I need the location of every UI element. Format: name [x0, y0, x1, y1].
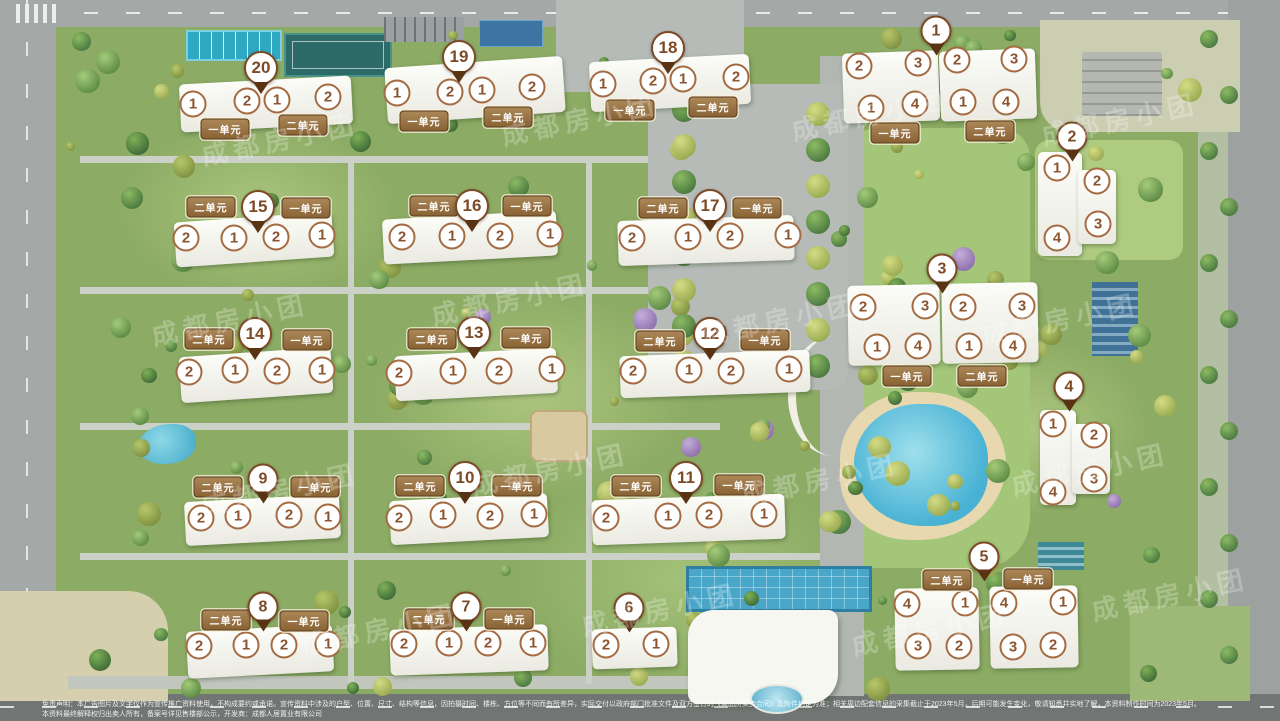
unit-number-badge: 2	[264, 358, 291, 385]
building-pin-number: 15	[241, 190, 275, 224]
pin-pointer	[458, 620, 474, 632]
tree-icon	[947, 474, 963, 490]
unit-number-badge: 1	[858, 95, 885, 122]
unit-entrance-label[interactable]: 一单元	[871, 123, 920, 144]
tree-icon	[806, 102, 830, 126]
disclaimer-line-2: 本资料最终解释权归出卖人所有，备案号详见售楼部公示，开发商：成都人居置业有限公司	[42, 710, 1280, 720]
unit-number-badge: 1	[643, 631, 670, 658]
unit-number-badge: 3	[912, 293, 939, 320]
tree-icon	[986, 459, 1010, 483]
building-pin-17[interactable]: 17	[693, 189, 727, 223]
gazebo	[530, 410, 588, 462]
building-pin-19[interactable]: 19	[442, 40, 476, 74]
unit-entrance-label[interactable]: 二单元	[966, 121, 1015, 142]
unit-number-badge: 2	[477, 503, 504, 530]
tree-icon	[514, 669, 532, 687]
unit-number-badge: 1	[222, 357, 249, 384]
unit-number-badge: 2	[696, 502, 723, 529]
building-pin-7[interactable]: 7	[451, 592, 482, 623]
unit-entrance-label[interactable]: 二单元	[405, 609, 454, 630]
unit-entrance-label[interactable]: 一单元	[502, 328, 551, 349]
unit-number-badge: 1	[315, 504, 342, 531]
tree-icon	[154, 628, 167, 641]
site-plan: 1212一单元二单元201212一单元二单元191212一单元二单元182323…	[0, 0, 1280, 721]
tree-icon	[1220, 422, 1238, 440]
building-pin-number: 11	[669, 461, 703, 495]
unit-number-badge: 3	[1081, 466, 1108, 493]
unit-number-badge: 2	[519, 74, 546, 101]
unit-entrance-label[interactable]: 二单元	[187, 197, 236, 218]
tree-icon	[1220, 86, 1238, 104]
unit-number-badge: 2	[846, 53, 873, 80]
tree-icon	[882, 255, 903, 276]
unit-number-badge: 4	[1000, 333, 1027, 360]
building-pin-number: 13	[457, 316, 491, 350]
unit-number-badge: 2	[188, 505, 215, 532]
building-pin-18[interactable]: 18	[651, 31, 685, 65]
unit-number-badge: 4	[993, 89, 1020, 116]
pin-pointer	[250, 221, 266, 233]
unit-number-badge: 3	[905, 633, 932, 660]
sports-court	[284, 33, 392, 77]
unit-entrance-label[interactable]: 一单元	[741, 330, 790, 351]
building-pin-8[interactable]: 8	[248, 592, 279, 623]
unit-number-badge: 1	[676, 357, 703, 384]
tree-icon	[1200, 366, 1218, 384]
tree-icon	[1200, 478, 1218, 496]
tree-icon	[1220, 198, 1238, 216]
tree-icon	[1200, 590, 1218, 608]
unit-number-badge: 1	[315, 631, 342, 658]
tree-icon	[848, 481, 862, 495]
unit-number-badge: 1	[309, 222, 336, 249]
basketball-court	[479, 20, 543, 47]
unit-number-badge: 1	[180, 91, 207, 118]
unit-number-badge: 1	[1050, 589, 1077, 616]
unit-number-badge: 1	[864, 334, 891, 361]
unit-number-badge: 2	[487, 223, 514, 250]
unit-entrance-label[interactable]: 二单元	[185, 329, 234, 350]
unit-number-badge: 1	[436, 630, 463, 657]
building-pin-number: 20	[244, 51, 278, 85]
tree-icon	[126, 132, 148, 154]
unit-number-badge: 2	[486, 358, 513, 385]
unit-number-badge: 2	[718, 358, 745, 385]
unit-number-badge: 4	[1040, 479, 1067, 506]
unit-entrance-label[interactable]: 一单元	[606, 100, 655, 121]
tree-icon	[1178, 78, 1202, 102]
unit-number-badge: 4	[894, 591, 921, 618]
building-pin-number: 9	[248, 464, 279, 495]
building-pin-10[interactable]: 10	[448, 461, 482, 495]
unit-number-badge: 2	[315, 84, 342, 111]
tree-icon	[1220, 534, 1238, 552]
tree-icon	[842, 465, 856, 479]
building-pin-number: 10	[448, 461, 482, 495]
unit-entrance-label[interactable]: 二单元	[689, 97, 738, 118]
tree-icon	[1143, 547, 1159, 563]
unit-number-badge: 1	[309, 357, 336, 384]
tree-icon	[806, 246, 830, 270]
unit-number-badge: 2	[950, 294, 977, 321]
unit-number-badge: 1	[221, 225, 248, 252]
tree-icon	[1200, 254, 1218, 272]
unit-entrance-label[interactable]: 一单元	[291, 477, 340, 498]
unit-number-badge: 1	[384, 80, 411, 107]
unit-number-badge: 1	[469, 77, 496, 104]
unit-number-badge: 1	[539, 356, 566, 383]
tree-icon	[881, 28, 901, 48]
unit-number-badge: 2	[271, 632, 298, 659]
unit-number-badge: 3	[1009, 293, 1036, 320]
unit-entrance-label[interactable]: 一单元	[715, 475, 764, 496]
building-pin-13[interactable]: 13	[457, 316, 491, 350]
tree-icon	[1220, 310, 1238, 328]
tree-icon	[1220, 646, 1238, 664]
unit-number-badge: 1	[430, 502, 457, 529]
building-pin-number: 6	[614, 593, 645, 624]
tree-icon	[75, 69, 100, 94]
pin-pointer	[255, 492, 271, 504]
unit-number-badge: 4	[902, 91, 929, 118]
tree-icon	[819, 511, 841, 533]
neighboring-building	[1082, 52, 1162, 116]
unit-number-badge: 2	[946, 633, 973, 660]
tree-icon	[868, 436, 890, 458]
pin-pointer	[928, 44, 944, 56]
unit-number-badge: 2	[717, 223, 744, 250]
unit-number-badge: 2	[386, 360, 413, 387]
tree-icon	[132, 530, 148, 546]
tree-icon	[500, 565, 511, 576]
unit-entrance-label[interactable]: 二单元	[923, 570, 972, 591]
unit-number-badge: 1	[950, 89, 977, 116]
pin-pointer	[1064, 150, 1080, 162]
unit-number-badge: 1	[520, 630, 547, 657]
tree-icon	[806, 210, 830, 234]
unit-number-badge: 2	[1081, 422, 1108, 449]
unit-entrance-label[interactable]: 一单元	[201, 119, 250, 140]
tree-icon	[587, 260, 597, 270]
unit-number-badge: 3	[1001, 46, 1028, 73]
building-pin-number: 18	[651, 31, 685, 65]
unit-number-badge: 1	[233, 632, 260, 659]
pin-pointer	[457, 492, 473, 504]
pin-pointer	[247, 348, 263, 360]
unit-number-badge: 2	[176, 359, 203, 386]
unit-entrance-label[interactable]: 二单元	[639, 198, 688, 219]
unit-number-badge: 3	[1085, 211, 1112, 238]
tree-icon	[806, 138, 830, 162]
unit-number-badge: 4	[1044, 225, 1071, 252]
tree-icon	[672, 134, 696, 158]
building-pin-number: 5	[969, 542, 1000, 573]
pin-pointer	[621, 621, 637, 633]
unit-number-badge: 1	[440, 358, 467, 385]
unit-number-badge: 2	[173, 225, 200, 252]
unit-entrance-label[interactable]: 一单元	[400, 111, 449, 132]
building-pin-11[interactable]: 11	[669, 461, 703, 495]
building-pin-number: 4	[1054, 372, 1085, 403]
tree-icon	[927, 494, 950, 517]
unit-number-badge: 1	[225, 503, 252, 530]
unit-number-badge: 1	[775, 222, 802, 249]
building-pin-6[interactable]: 6	[614, 593, 645, 624]
tree-icon	[171, 64, 184, 77]
unit-number-badge: 1	[537, 221, 564, 248]
unit-number-badge: 1	[776, 356, 803, 383]
unit-entrance-label[interactable]: 二单元	[202, 610, 251, 631]
pin-pointer	[1061, 400, 1077, 412]
tree-icon	[1095, 251, 1119, 275]
tree-icon	[888, 391, 902, 405]
unit-entrance-label[interactable]: 二单元	[636, 331, 685, 352]
unit-number-badge: 2	[389, 224, 416, 251]
unit-number-badge: 2	[1084, 168, 1111, 195]
building-pin-1[interactable]: 1	[921, 16, 952, 47]
tree-icon	[1088, 146, 1103, 161]
unit-number-badge: 4	[905, 333, 932, 360]
tree-icon	[1200, 142, 1218, 160]
tree-icon	[648, 286, 672, 310]
tree-icon	[914, 170, 923, 179]
building-pin-14[interactable]: 14	[238, 317, 272, 351]
tree-icon	[369, 270, 389, 290]
crosswalk	[16, 4, 56, 23]
building-pin-number: 12	[693, 317, 727, 351]
unit-number-badge: 2	[263, 224, 290, 251]
pin-pointer	[934, 282, 950, 294]
solar-panel-array	[1038, 542, 1084, 570]
tree-icon	[417, 450, 432, 465]
unit-entrance-label[interactable]: 二单元	[410, 196, 459, 217]
unit-number-badge: 1	[952, 590, 979, 617]
unit-number-badge: 2	[186, 633, 213, 660]
unit-number-badge: 2	[620, 358, 647, 385]
building-pin-2[interactable]: 2	[1057, 122, 1088, 153]
clubhouse-water-feature	[686, 566, 872, 612]
unit-entrance-label[interactable]: 一单元	[283, 330, 332, 351]
tree-icon	[1200, 30, 1218, 48]
building-pin-12[interactable]: 12	[693, 317, 727, 351]
tree-icon	[230, 461, 243, 474]
swimming-pool	[854, 404, 988, 526]
tree-icon	[866, 677, 890, 701]
tree-icon	[339, 606, 351, 618]
pin-pointer	[976, 570, 992, 582]
unit-entrance-label[interactable]: 一单元	[733, 198, 782, 219]
unit-number-badge: 1	[1040, 411, 1067, 438]
pin-pointer	[702, 348, 718, 360]
tree-icon	[950, 501, 960, 511]
unit-entrance-label[interactable]: 二单元	[408, 329, 457, 350]
unit-number-badge: 2	[723, 64, 750, 91]
tree-icon	[806, 282, 830, 306]
unit-entrance-label[interactable]: 二单元	[194, 477, 243, 498]
unit-entrance-label[interactable]: 一单元	[280, 611, 329, 632]
unit-number-badge: 2	[850, 294, 877, 321]
unit-number-badge: 2	[944, 47, 971, 74]
tree-icon	[173, 155, 196, 178]
unit-entrance-label[interactable]: 二单元	[396, 476, 445, 497]
unit-number-badge: 2	[391, 631, 418, 658]
unit-number-badge: 4	[991, 590, 1018, 617]
building-pin-16[interactable]: 16	[455, 189, 489, 223]
building-pin-4[interactable]: 4	[1054, 372, 1085, 403]
building-pin-number: 19	[442, 40, 476, 74]
building-pin-number: 8	[248, 592, 279, 623]
unit-number-badge: 1	[521, 501, 548, 528]
unit-entrance-label[interactable]: 一单元	[485, 609, 534, 630]
building-pin-15[interactable]: 15	[241, 190, 275, 224]
pin-pointer	[464, 220, 480, 232]
unit-number-badge: 2	[619, 225, 646, 252]
unit-entrance-label[interactable]: 二单元	[279, 115, 328, 136]
tree-icon	[1130, 350, 1143, 363]
unit-entrance-label[interactable]: 一单元	[1004, 569, 1053, 590]
walkway-vertical	[348, 156, 354, 684]
pin-pointer	[660, 62, 676, 74]
building-pin-number: 17	[693, 189, 727, 223]
tree-icon	[878, 596, 887, 605]
building-pin-5[interactable]: 5	[969, 542, 1000, 573]
unit-number-badge: 1	[655, 503, 682, 530]
tree-icon	[133, 439, 150, 456]
solar-panel-array	[1092, 282, 1138, 356]
building-pin-number: 3	[927, 254, 958, 285]
unit-entrance-label[interactable]: 二单元	[958, 366, 1007, 387]
building-pin-number: 2	[1057, 122, 1088, 153]
building-pin-3[interactable]: 3	[927, 254, 958, 285]
unit-number-badge: 2	[593, 505, 620, 532]
disclaimer-text: 免责声明：本广告图片及文字仅作为宣传推广资料使用，不构成要约或承诺。宣传资料中涉…	[42, 700, 1280, 720]
unit-entrance-label[interactable]: 一单元	[883, 366, 932, 387]
disclaimer-line-1: 免责声明：本广告图片及文字仅作为宣传推广资料使用，不构成要约或承诺。宣传资料中涉…	[42, 700, 1280, 710]
pin-pointer	[253, 82, 269, 94]
unit-number-badge: 2	[386, 505, 413, 532]
building-pin-number: 1	[921, 16, 952, 47]
tree-icon	[806, 174, 830, 198]
tree-icon	[1017, 153, 1035, 171]
unit-number-badge: 3	[1000, 634, 1027, 661]
unit-entrance-label[interactable]: 二单元	[484, 107, 533, 128]
pin-pointer	[451, 71, 467, 83]
building-pin-number: 7	[451, 592, 482, 623]
tree-icon	[137, 502, 161, 526]
tree-icon	[366, 355, 377, 366]
unit-entrance-label[interactable]: 一单元	[282, 198, 331, 219]
unit-entrance-label[interactable]: 二单元	[612, 476, 661, 497]
building-pin-20[interactable]: 20	[244, 51, 278, 85]
unit-number-badge: 2	[593, 632, 620, 659]
building-pin-9[interactable]: 9	[248, 464, 279, 495]
tree-icon	[141, 368, 157, 384]
pin-pointer	[255, 620, 271, 632]
tree-icon	[857, 187, 878, 208]
tree-icon	[1161, 68, 1173, 80]
unit-number-badge: 1	[956, 333, 983, 360]
pin-pointer	[702, 220, 718, 232]
unit-entrance-label[interactable]: 一单元	[493, 476, 542, 497]
unit-entrance-label[interactable]: 一单元	[503, 196, 552, 217]
unit-number-badge: 1	[751, 501, 778, 528]
building-pin-number: 14	[238, 317, 272, 351]
unit-number-badge: 2	[276, 502, 303, 529]
tree-icon	[681, 437, 701, 457]
building-pin-number: 16	[455, 189, 489, 223]
tree-icon	[1138, 177, 1163, 202]
tree-icon	[672, 278, 696, 302]
pin-pointer	[466, 347, 482, 359]
tree-icon	[839, 225, 850, 236]
tree-icon	[885, 461, 910, 486]
tree-icon	[799, 441, 809, 451]
unit-number-badge: 2	[1040, 632, 1067, 659]
unit-number-badge: 1	[439, 223, 466, 250]
unit-number-badge: 1	[590, 71, 617, 98]
pin-pointer	[678, 492, 694, 504]
tree-icon	[633, 308, 657, 332]
unit-number-badge: 1	[675, 224, 702, 251]
tree-icon	[131, 407, 149, 425]
unit-number-badge: 2	[475, 630, 502, 657]
tree-icon	[806, 318, 830, 342]
